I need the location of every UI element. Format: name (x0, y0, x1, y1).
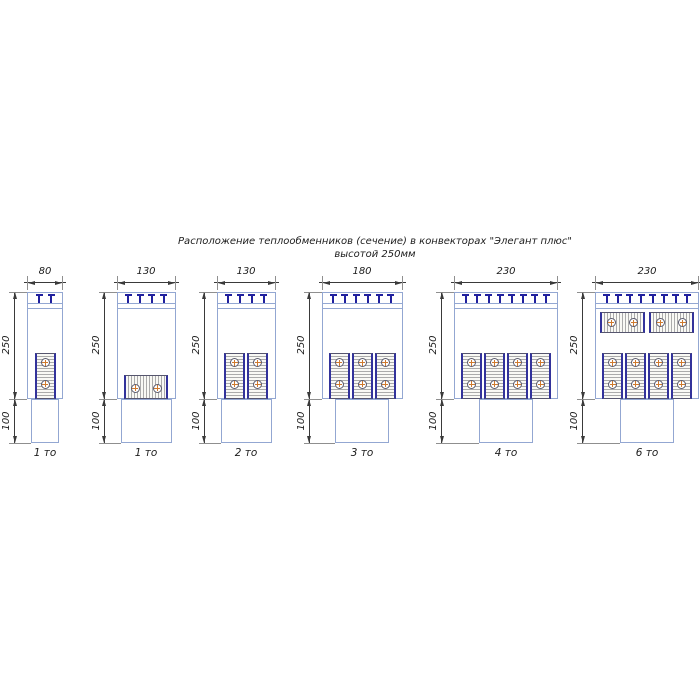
t-bracket-stem (499, 294, 501, 303)
dimension-line-height (14, 292, 15, 443)
tube-cross-v (339, 381, 340, 387)
band-line (595, 303, 699, 304)
tube-circle (41, 358, 50, 367)
duct-height-dim-label: 100 (428, 396, 440, 446)
tube-cross-v (135, 385, 136, 391)
t-bracket-stem (38, 294, 40, 303)
tube-cross-v (540, 381, 541, 387)
air-duct (479, 399, 533, 443)
extension-line (304, 443, 336, 444)
dim-arrow-up (581, 292, 585, 299)
figure-type-label: 1 то (20, 447, 70, 459)
dim-arrow-up (102, 292, 106, 299)
figure-type-label: 6 то (622, 447, 672, 459)
extension-line (577, 443, 620, 444)
duct-height-dim-label: 100 (191, 396, 203, 446)
dim-arrow-down (440, 392, 444, 399)
tube-circle (607, 318, 616, 327)
tube-cross-v (681, 381, 682, 387)
tube-cross-v (494, 381, 495, 387)
air-duct (221, 399, 272, 443)
figure-type-label: 1 то (121, 447, 171, 459)
tube-circle (608, 358, 617, 367)
tube-circle (513, 380, 522, 389)
t-bracket-stem (332, 294, 334, 303)
t-bracket-stem (50, 294, 52, 303)
tube-circle (490, 358, 499, 367)
t-bracket-stem (629, 294, 631, 303)
tube-cross-v (471, 360, 472, 366)
duct-height-dim-label: 100 (296, 396, 308, 446)
t-bracket-stem (606, 294, 608, 303)
dim-arrow-down (581, 392, 585, 399)
t-bracket-stem (227, 294, 229, 303)
band-line (117, 303, 176, 304)
dim-arrow-down (581, 436, 585, 443)
tube-circle (253, 380, 262, 389)
t-bracket-stem (127, 294, 129, 303)
extension-line (436, 443, 479, 444)
dim-arrow-right (395, 281, 402, 285)
dim-arrow-left (455, 281, 462, 285)
tube-cross-v (517, 381, 518, 387)
tube-cross-v (339, 360, 340, 366)
t-bracket-stem (251, 294, 253, 303)
tube-circle (153, 384, 162, 393)
dimension-line-width (319, 282, 406, 283)
duct-height-dim-label: 100 (91, 396, 103, 446)
dimension-line-height (441, 292, 442, 443)
extension-line (557, 276, 558, 290)
tube-circle (335, 380, 344, 389)
duct-height-dim-label: 100 (1, 396, 13, 446)
dim-arrow-right (691, 281, 698, 285)
tube-cross-v (385, 381, 386, 387)
tube-circle (654, 358, 663, 367)
dim-arrow-down (13, 392, 17, 399)
tube-cross-v (471, 381, 472, 387)
band-line (27, 308, 63, 309)
tube-circle (381, 358, 390, 367)
duct-height-dim-label: 100 (569, 396, 581, 446)
air-duct (121, 399, 172, 443)
tube-circle (467, 380, 476, 389)
tube-cross-v (660, 320, 661, 326)
figure-type-label: 2 то (221, 447, 271, 459)
band-line (595, 308, 699, 309)
band-line (117, 308, 176, 309)
tube-circle (41, 380, 50, 389)
tube-cross-v (385, 360, 386, 366)
tube-circle (358, 380, 367, 389)
body-height-dim-label: 250 (191, 320, 203, 370)
t-bracket-stem (522, 294, 524, 303)
band-line (217, 308, 276, 309)
dimension-line-width (592, 282, 700, 283)
tube-cross-v (362, 360, 363, 366)
t-bracket-stem (545, 294, 547, 303)
dim-arrow-up (307, 292, 311, 299)
convector-sections-drawing: 802501001 то1302501001 то1302501002 то18… (0, 0, 700, 700)
body-height-dim-label: 250 (569, 320, 581, 370)
tube-circle (513, 358, 522, 367)
dimension-line-height (204, 292, 205, 443)
dim-arrow-right (168, 281, 175, 285)
dim-arrow-right (268, 281, 275, 285)
t-bracket-stem (511, 294, 513, 303)
width-dim-label: 180 (337, 266, 387, 278)
t-bracket-stem (367, 294, 369, 303)
body-height-dim-label: 250 (1, 320, 13, 370)
dim-arrow-left (28, 281, 35, 285)
width-dim-label: 80 (20, 266, 70, 278)
tube-cross-v (45, 360, 46, 366)
t-bracket-stem (263, 294, 265, 303)
dimension-line-height (582, 292, 583, 443)
tube-cross-v (611, 320, 612, 326)
t-bracket-stem (163, 294, 165, 303)
tube-circle (677, 380, 686, 389)
air-duct (31, 399, 59, 443)
tube-cross-v (540, 360, 541, 366)
tube-cross-v (362, 381, 363, 387)
tube-circle (608, 380, 617, 389)
t-bracket-stem (476, 294, 478, 303)
body-height-dim-label: 250 (91, 320, 103, 370)
dim-arrow-right (550, 281, 557, 285)
dimension-line-width (451, 282, 561, 283)
tube-circle (335, 358, 344, 367)
t-bracket-stem (686, 294, 688, 303)
extension-line (402, 276, 403, 290)
body-height-dim-label: 250 (296, 320, 308, 370)
dim-arrow-up (581, 399, 585, 406)
tube-cross-v (635, 360, 636, 366)
t-bracket-stem (151, 294, 153, 303)
tube-cross-v (612, 381, 613, 387)
tube-circle (490, 380, 499, 389)
tube-cross-v (635, 381, 636, 387)
t-bracket-stem (390, 294, 392, 303)
t-bracket-stem (355, 294, 357, 303)
band-line (322, 308, 403, 309)
tube-circle (230, 380, 239, 389)
tube-cross-v (658, 381, 659, 387)
width-dim-label: 230 (622, 266, 672, 278)
t-bracket-stem (663, 294, 665, 303)
t-bracket-stem (465, 294, 467, 303)
tube-circle (358, 358, 367, 367)
t-bracket-stem (139, 294, 141, 303)
tube-circle (131, 384, 140, 393)
tube-cross-v (257, 381, 258, 387)
t-bracket-stem (617, 294, 619, 303)
extension-line (275, 276, 276, 290)
figure-type-label: 3 то (337, 447, 387, 459)
band-line (454, 303, 558, 304)
band-line (322, 303, 403, 304)
dim-arrow-right (55, 281, 62, 285)
tube-cross-v (681, 360, 682, 366)
band-line (454, 308, 558, 309)
t-bracket-stem (640, 294, 642, 303)
body-height-dim-label: 250 (428, 320, 440, 370)
t-bracket-stem (239, 294, 241, 303)
air-duct (620, 399, 674, 443)
dim-arrow-left (218, 281, 225, 285)
width-dim-label: 130 (221, 266, 271, 278)
tube-cross-v (633, 320, 634, 326)
tube-cross-v (682, 320, 683, 326)
dim-arrow-up (440, 292, 444, 299)
tube-circle (677, 358, 686, 367)
tube-circle (656, 318, 665, 327)
extension-line (175, 276, 176, 290)
tube-cross-v (157, 385, 158, 391)
tube-cross-v (257, 360, 258, 366)
extension-line (698, 276, 699, 290)
tube-circle (230, 358, 239, 367)
t-bracket-stem (675, 294, 677, 303)
dim-arrow-up (13, 292, 17, 299)
dimension-line-height (309, 292, 310, 443)
tube-cross-v (234, 381, 235, 387)
tube-cross-v (494, 360, 495, 366)
tube-circle (536, 380, 545, 389)
t-bracket-stem (652, 294, 654, 303)
t-bracket-stem (378, 294, 380, 303)
t-bracket-stem (344, 294, 346, 303)
dim-arrow-up (440, 399, 444, 406)
dimension-line-height (104, 292, 105, 443)
dim-arrow-down (13, 436, 17, 443)
band-line (27, 303, 63, 304)
technical-drawing-page: Расположение теплообменников (сечение) в… (0, 0, 700, 700)
extension-line (62, 276, 63, 290)
dim-arrow-left (118, 281, 125, 285)
tube-circle (631, 380, 640, 389)
tube-circle (381, 380, 390, 389)
dim-arrow-left (323, 281, 330, 285)
width-dim-label: 130 (121, 266, 171, 278)
tube-circle (253, 358, 262, 367)
tube-circle (631, 358, 640, 367)
t-bracket-stem (534, 294, 536, 303)
band-line (217, 303, 276, 304)
figure-type-label: 4 то (481, 447, 531, 459)
tube-cross-v (45, 381, 46, 387)
width-dim-label: 230 (481, 266, 531, 278)
tube-cross-v (612, 360, 613, 366)
tube-cross-v (658, 360, 659, 366)
tube-circle (467, 358, 476, 367)
tube-cross-v (517, 360, 518, 366)
dim-arrow-up (202, 292, 206, 299)
t-bracket-stem (488, 294, 490, 303)
tube-circle (654, 380, 663, 389)
tube-circle (536, 358, 545, 367)
dim-arrow-left (596, 281, 603, 285)
air-duct (335, 399, 389, 443)
dim-arrow-down (440, 436, 444, 443)
tube-cross-v (234, 360, 235, 366)
dim-arrow-up (13, 399, 17, 406)
